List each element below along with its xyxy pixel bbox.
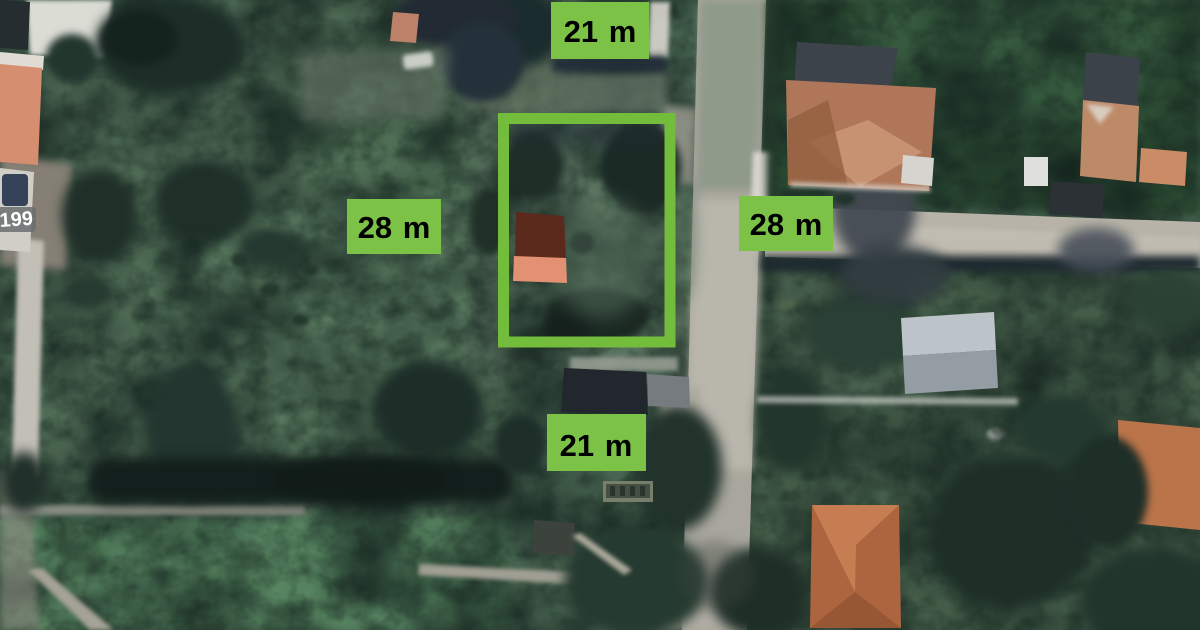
svg-text:21 m: 21 m bbox=[560, 428, 633, 463]
svg-text:199: 199 bbox=[0, 208, 34, 232]
svg-text:28 m: 28 m bbox=[358, 210, 431, 245]
svg-text:21 m: 21 m bbox=[564, 14, 637, 49]
svg-text:28 m: 28 m bbox=[750, 207, 823, 242]
